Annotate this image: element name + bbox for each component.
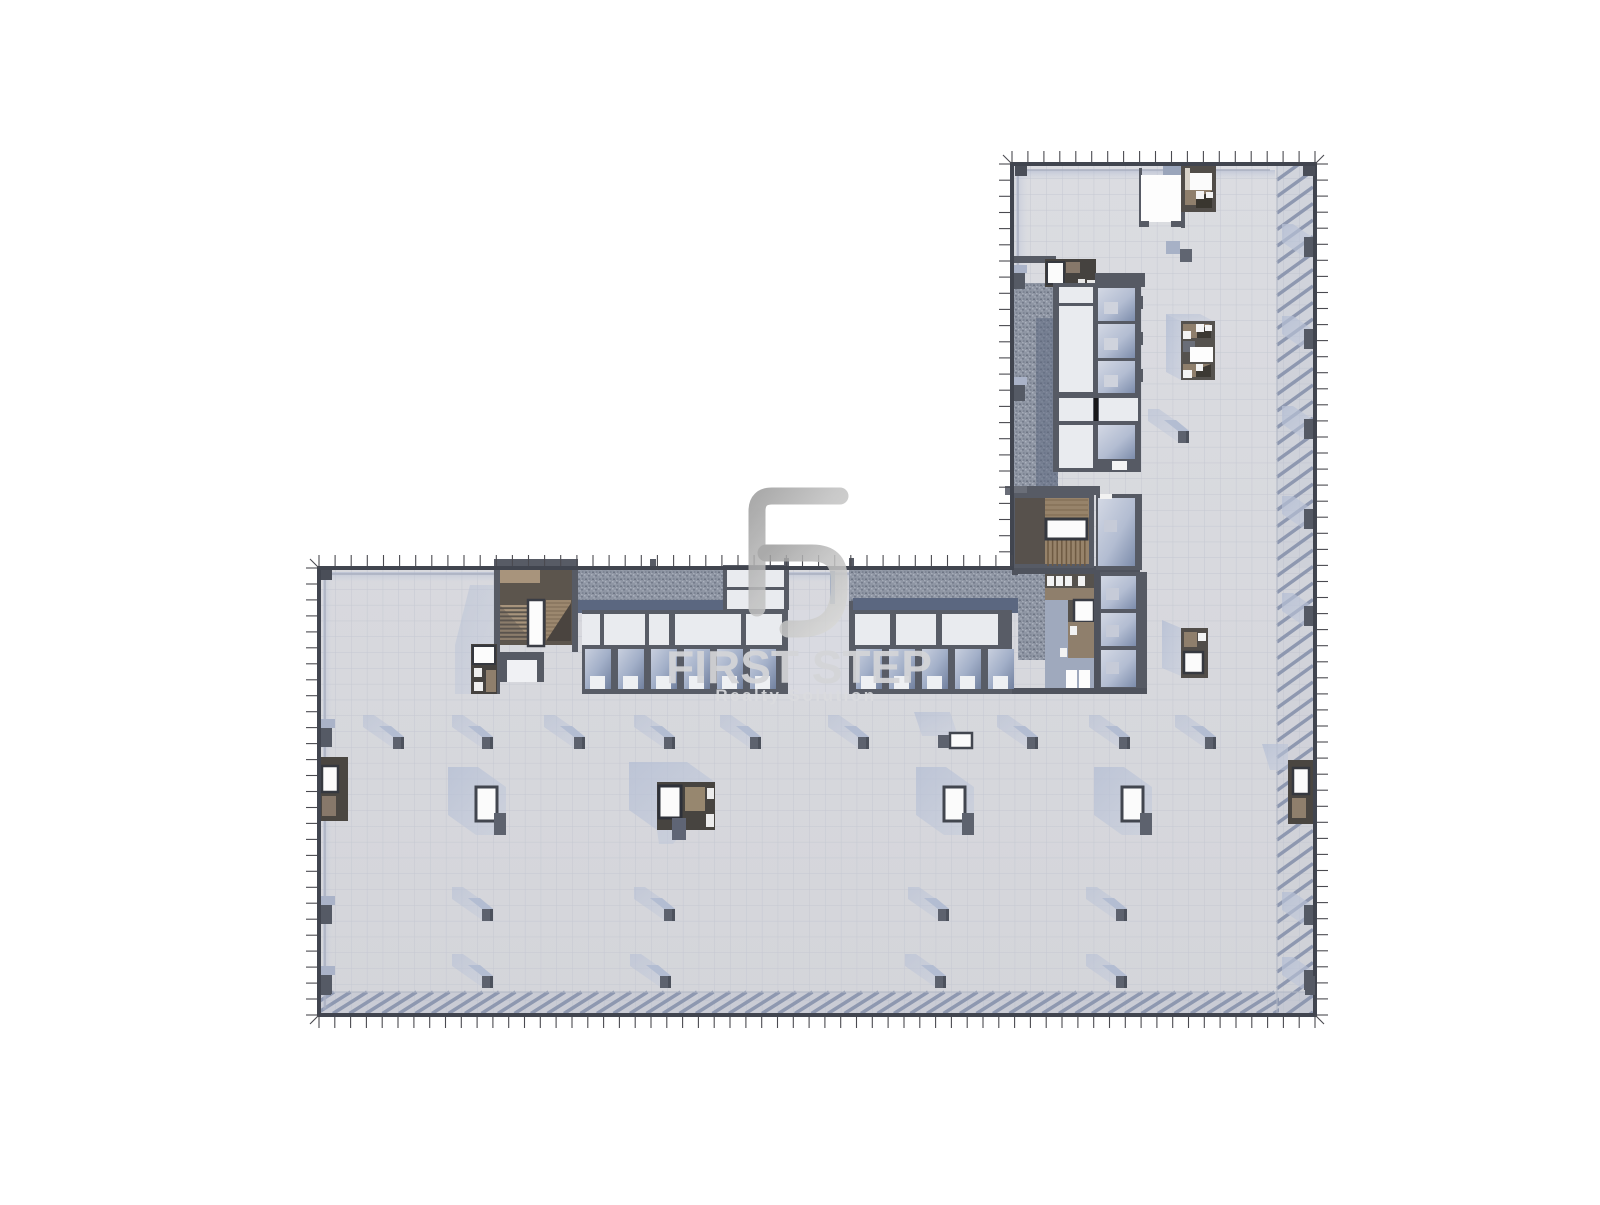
svg-text:Realty Solution: Realty Solution (715, 686, 876, 705)
